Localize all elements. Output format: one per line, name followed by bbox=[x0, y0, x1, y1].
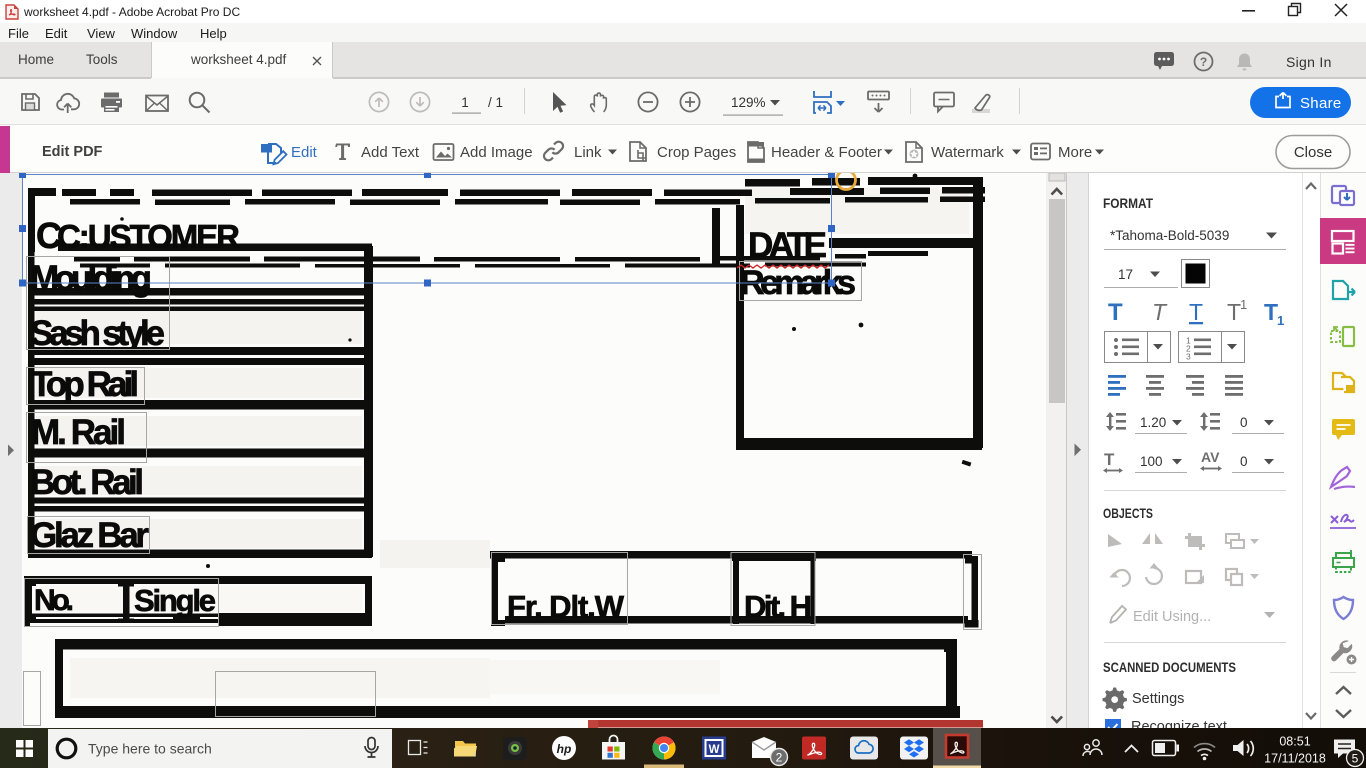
svg-text:Moulding: Moulding bbox=[30, 259, 152, 298]
svg-text:0: 0 bbox=[1240, 454, 1248, 469]
svg-text:C:USTOMER: C:USTOMER bbox=[57, 218, 240, 255]
svg-text:DATE: DATE bbox=[748, 226, 827, 265]
svg-text:More: More bbox=[1058, 144, 1092, 161]
svg-text:T: T bbox=[1108, 299, 1123, 326]
svg-text:129%: 129% bbox=[731, 95, 766, 110]
svg-text:Sash style: Sash style bbox=[30, 314, 165, 353]
svg-text:1: 1 bbox=[1240, 297, 1247, 312]
svg-text:T: T bbox=[1264, 299, 1278, 325]
svg-text:SCANNED DOCUMENTS: SCANNED DOCUMENTS bbox=[1103, 660, 1236, 675]
svg-text:AV: AV bbox=[1201, 449, 1220, 465]
svg-text:Close: Close bbox=[1294, 144, 1332, 161]
svg-text:Settings: Settings bbox=[1132, 691, 1184, 707]
svg-text:2: 2 bbox=[776, 751, 783, 765]
svg-text:Bot. Rail: Bot. Rail bbox=[30, 463, 144, 502]
svg-text:1.20: 1.20 bbox=[1140, 415, 1166, 430]
svg-text:17/11/2018: 17/11/2018 bbox=[1264, 752, 1326, 766]
svg-text:Type here to search: Type here to search bbox=[88, 741, 212, 757]
svg-text:Add Image: Add Image bbox=[460, 144, 533, 161]
svg-text:M. Rail: M. Rail bbox=[31, 413, 126, 452]
svg-text:T: T bbox=[1152, 299, 1168, 325]
svg-text:100: 100 bbox=[1140, 454, 1163, 469]
svg-text:Single: Single bbox=[134, 583, 216, 618]
svg-text:3: 3 bbox=[1186, 352, 1191, 362]
svg-text:T: T bbox=[1227, 299, 1241, 325]
svg-text:No.: No. bbox=[34, 584, 74, 617]
svg-text:Link: Link bbox=[574, 144, 602, 161]
svg-text:0: 0 bbox=[1240, 415, 1248, 430]
svg-text:Watermark: Watermark bbox=[931, 144, 1004, 161]
svg-text:/ 1: / 1 bbox=[488, 95, 503, 110]
svg-text:Edit: Edit bbox=[291, 144, 318, 161]
svg-text:Glaz Bar: Glaz Bar bbox=[30, 516, 149, 555]
svg-text:Top Rail: Top Rail bbox=[31, 365, 139, 404]
svg-text:Crop Pages: Crop Pages bbox=[657, 144, 736, 161]
svg-text:T: T bbox=[1189, 299, 1203, 325]
svg-text:Header & Footer: Header & Footer bbox=[771, 144, 882, 161]
svg-text:Edit Using...: Edit Using... bbox=[1133, 609, 1211, 625]
svg-text:1: 1 bbox=[461, 95, 469, 110]
svg-text:08:51: 08:51 bbox=[1279, 735, 1310, 749]
svg-text:OBJECTS: OBJECTS bbox=[1103, 506, 1153, 521]
svg-text:Dit. H: Dit. H bbox=[744, 589, 812, 624]
svg-text:Add Text: Add Text bbox=[361, 144, 420, 161]
svg-text:1: 1 bbox=[1277, 313, 1284, 328]
svg-text:Recognize text: Recognize text bbox=[1131, 719, 1227, 728]
svg-text:*Tahoma-Bold-5039: *Tahoma-Bold-5039 bbox=[1110, 228, 1229, 243]
svg-text:Share: Share bbox=[1300, 95, 1342, 112]
svg-text:FORMAT: FORMAT bbox=[1103, 196, 1154, 211]
svg-text:17: 17 bbox=[1118, 267, 1133, 282]
svg-text:Fr. Dlt.W: Fr. Dlt.W bbox=[507, 589, 625, 624]
svg-text:?: ? bbox=[1200, 55, 1207, 69]
svg-text:T: T bbox=[1104, 450, 1115, 469]
svg-text:5: 5 bbox=[1352, 752, 1359, 766]
svg-text:hp: hp bbox=[557, 742, 572, 756]
svg-text:W: W bbox=[709, 744, 720, 756]
